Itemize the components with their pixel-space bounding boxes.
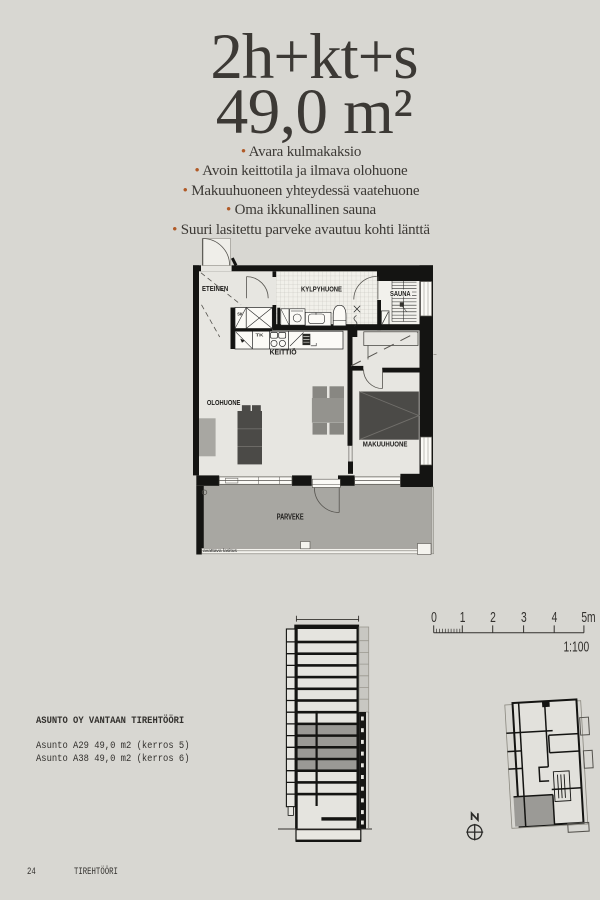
svg-text:2: 2 xyxy=(490,609,496,625)
svg-text:SK: SK xyxy=(237,312,243,317)
svg-text:KYLPYHUONE: KYLPYHUONE xyxy=(301,284,342,293)
svg-text:4: 4 xyxy=(552,609,558,625)
svg-text:1: 1 xyxy=(460,609,466,625)
svg-text:avattava lasitus: avattava lasitus xyxy=(203,548,238,554)
svg-text:ETEINEN: ETEINEN xyxy=(202,284,228,293)
svg-text:PARVEKE: PARVEKE xyxy=(277,513,304,522)
svg-text:TK: TK xyxy=(256,333,264,338)
svg-text:SAUNA: SAUNA xyxy=(390,289,411,298)
svg-text:3: 3 xyxy=(521,609,527,625)
svg-text:MAKUUHUONE: MAKUUHUONE xyxy=(363,440,408,449)
svg-text:0: 0 xyxy=(431,609,437,625)
svg-text:OLOHUONE: OLOHUONE xyxy=(207,398,241,407)
svg-text:1:100: 1:100 xyxy=(563,639,589,655)
svg-text:5m: 5m xyxy=(581,609,595,625)
svg-text:KEITTIÖ: KEITTIÖ xyxy=(270,348,297,357)
